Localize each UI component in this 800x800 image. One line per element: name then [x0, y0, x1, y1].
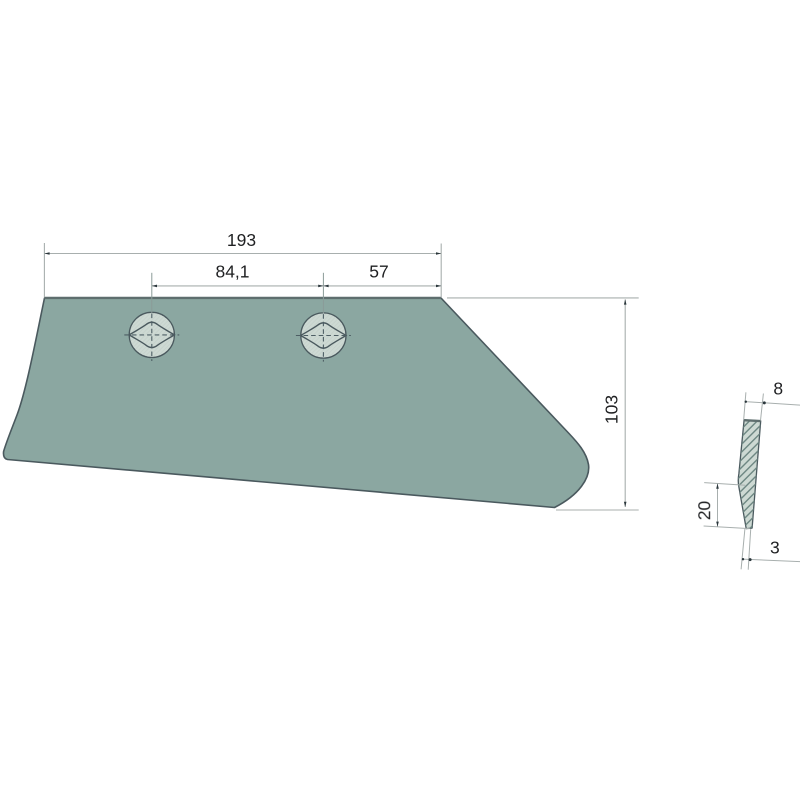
- svg-text:103: 103: [602, 395, 622, 424]
- svg-text:57: 57: [369, 262, 388, 282]
- svg-text:8: 8: [773, 379, 783, 399]
- svg-text:3: 3: [770, 538, 780, 558]
- svg-text:193: 193: [227, 230, 256, 250]
- svg-text:20: 20: [694, 501, 714, 521]
- svg-text:84,1: 84,1: [215, 261, 249, 281]
